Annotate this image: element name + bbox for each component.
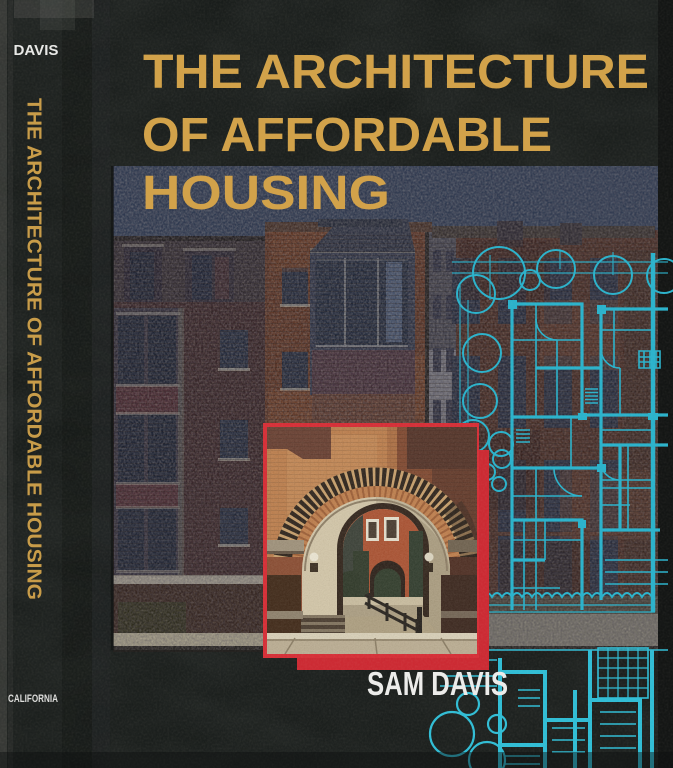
svg-text:SAM DAVIS: SAM DAVIS	[367, 665, 508, 702]
svg-text:THE ARCHITECTURE OF AFFORDABLE: THE ARCHITECTURE OF AFFORDABLE HOUSING	[23, 98, 46, 600]
svg-text:DAVIS: DAVIS	[14, 42, 59, 59]
svg-text:THE ARCHITECTURE: THE ARCHITECTURE	[143, 46, 649, 99]
svg-text:HOUSING: HOUSING	[142, 167, 390, 220]
svg-text:OF AFFORDABLE: OF AFFORDABLE	[142, 109, 552, 162]
svg-text:CALIFORNIA: CALIFORNIA	[8, 693, 58, 705]
